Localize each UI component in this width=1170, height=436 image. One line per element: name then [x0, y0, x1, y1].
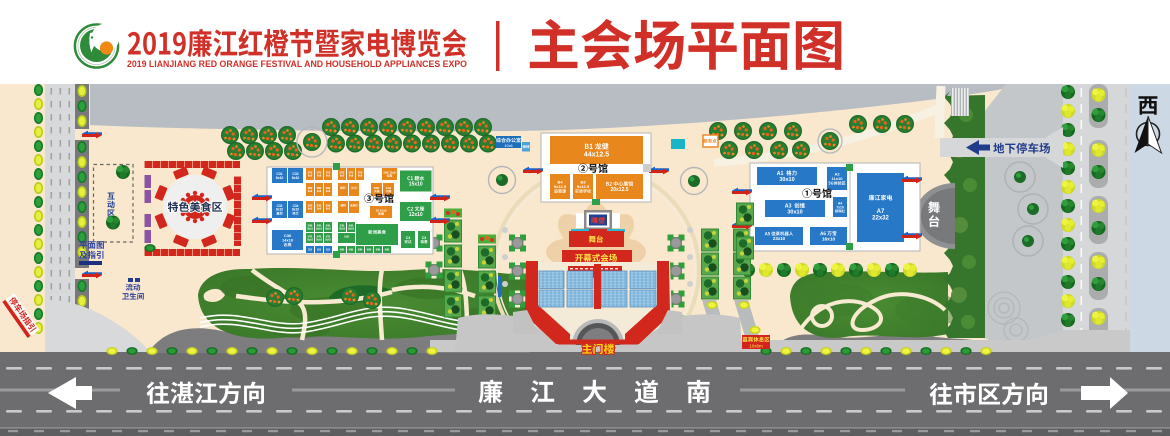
svg-text:29B 10x8: 29B 10x8 — [383, 170, 396, 174]
svg-text:22B: 22B — [374, 186, 379, 190]
svg-text:8x10: 8x10 — [292, 208, 299, 212]
svg-text:30x10: 30x10 — [779, 177, 794, 183]
svg-text:8x8: 8x8 — [326, 207, 331, 211]
svg-text:30x10: 30x10 — [787, 210, 802, 216]
svg-text:09B: 09B — [349, 248, 354, 251]
svg-text:12x10: 12x10 — [409, 212, 423, 218]
svg-text:22x32: 22x32 — [872, 216, 889, 222]
svg-text:C4: C4 — [406, 236, 411, 240]
svg-text:11B: 11B — [317, 248, 322, 251]
svg-text:8x10: 8x10 — [276, 208, 283, 212]
svg-text:44x12.5: 44x12.5 — [584, 152, 609, 159]
svg-text:6x8: 6x8 — [317, 174, 322, 178]
svg-text:20x12.5: 20x12.5 — [610, 187, 628, 193]
svg-text:16x10: 16x10 — [822, 237, 836, 243]
svg-text:7x10: 7x10 — [836, 205, 844, 209]
svg-text:A7: A7 — [877, 209, 885, 215]
svg-text:01B: 01B — [344, 234, 349, 238]
svg-text:10x6: 10x6 — [504, 144, 512, 148]
svg-text:09B: 09B — [385, 248, 390, 251]
svg-text:Sub1: Sub1 — [316, 227, 323, 230]
svg-text:8x8: 8x8 — [317, 189, 322, 193]
svg-text:09B: 09B — [358, 248, 363, 251]
svg-text:6x8: 6x8 — [349, 174, 354, 178]
svg-text:19 10x8: 19 10x8 — [376, 208, 387, 212]
svg-text:23x10: 23x10 — [773, 236, 786, 241]
svg-text:8x8: 8x8 — [317, 207, 322, 211]
svg-text:Sub3: Sub3 — [339, 227, 346, 230]
svg-text:Sub2: Sub2 — [325, 238, 332, 241]
svg-text:6x8: 6x8 — [340, 174, 345, 178]
svg-text:9x12.5: 9x12.5 — [577, 184, 590, 189]
svg-text:Sub1: Sub1 — [325, 227, 332, 230]
svg-text:09B: 09B — [340, 248, 345, 251]
svg-text:14x10: 14x10 — [282, 238, 294, 243]
svg-text:8x8: 8x8 — [326, 189, 331, 193]
svg-text:11B: 11B — [326, 248, 331, 251]
svg-text:09B: 09B — [367, 248, 372, 251]
svg-text:8x8: 8x8 — [308, 207, 313, 211]
svg-text:11B: 11B — [308, 248, 313, 251]
svg-text:09B: 09B — [376, 248, 381, 251]
svg-text:8x8: 8x8 — [308, 189, 313, 193]
svg-text:8x10: 8x10 — [276, 176, 284, 180]
svg-text:15x10: 15x10 — [409, 182, 423, 188]
svg-text:C3: C3 — [422, 236, 427, 240]
svg-text:6x8: 6x8 — [308, 174, 313, 178]
svg-text:Sub2: Sub2 — [307, 238, 314, 241]
svg-text:Sub1: Sub1 — [307, 227, 314, 230]
svg-text:10x6m: 10x6m — [749, 344, 763, 349]
svg-text:Sub3: Sub3 — [348, 227, 355, 230]
svg-text:2019 LIANJIANG RED ORANGE FEST: 2019 LIANJIANG RED ORANGE FESTIVAL AND H… — [127, 59, 467, 70]
svg-text:Sub2: Sub2 — [316, 238, 323, 241]
svg-text:6x8: 6x8 — [358, 174, 363, 178]
svg-text:11x10: 11x10 — [832, 176, 844, 181]
svg-text:8x10: 8x10 — [292, 176, 300, 180]
svg-text:21B: 21B — [386, 186, 391, 190]
svg-text:9x12.5: 9x12.5 — [554, 184, 567, 189]
svg-text:6x8: 6x8 — [326, 174, 331, 178]
